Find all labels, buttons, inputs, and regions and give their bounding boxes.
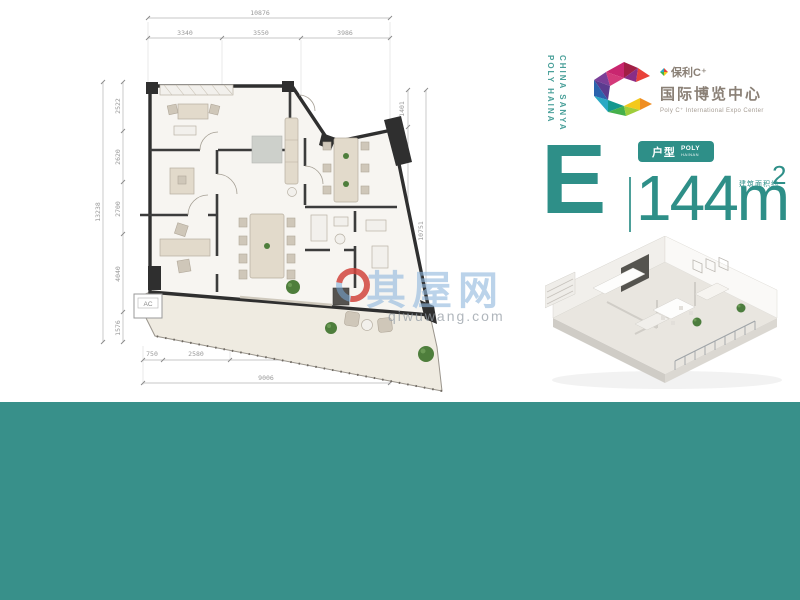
unit-type-badge: 户型 POLY HAINAN [638, 141, 714, 162]
unit-3d-render [545, 236, 795, 398]
bottom-section: 户 型 鉴 赏 UNIT APPRECIATION 板式结构 端头位置 南北通透… [0, 402, 800, 600]
brand-vertical-text-2: CHINA SANYA [558, 55, 567, 132]
dimensions-left: 13238 2522 2620 2700 4040 1576 [94, 80, 125, 344]
ac-label: AC [143, 301, 152, 308]
svg-text:3340: 3340 [177, 29, 193, 37]
brand-text-block: 保利C⁺ 国际博览中心 Poly C⁺ International Expo C… [660, 64, 764, 114]
unit-letter: E [541, 130, 606, 228]
svg-text:4040: 4040 [114, 266, 122, 282]
floorplan-drawing: 10876 3340 3550 3986 13238 2522 2620 270… [90, 6, 460, 398]
svg-text:2700: 2700 [114, 201, 122, 217]
svg-text:10876: 10876 [250, 9, 270, 17]
svg-text:1576: 1576 [114, 320, 122, 336]
brand-name-cn: 保利C⁺ [671, 64, 707, 80]
svg-text:1401: 1401 [398, 101, 406, 117]
brand-subname-cn: 国际博览中心 [660, 83, 764, 104]
svg-text:3550: 3550 [253, 29, 269, 37]
mini-logo-icon [660, 68, 668, 76]
svg-text:3986: 3986 [337, 29, 353, 37]
badge-label-en2: HAINAN [681, 153, 700, 157]
svg-text:13238: 13238 [94, 202, 102, 222]
polyc-logo-icon [586, 54, 662, 124]
unit-area-note: 建筑面积约 [739, 179, 779, 189]
ac-unit: AC [134, 294, 162, 318]
badge-label-cn: 户型 [652, 144, 676, 160]
svg-text:2580: 2580 [188, 350, 204, 358]
marketing-page: 10876 3340 3550 3986 13238 2522 2620 270… [0, 0, 800, 600]
top-section: 10876 3340 3550 3986 13238 2522 2620 270… [0, 0, 800, 402]
dimensions-top: 10876 3340 3550 3986 [146, 9, 392, 40]
unit-area-value: 144m [636, 166, 788, 230]
svg-text:750: 750 [146, 350, 158, 358]
svg-text:10751: 10751 [417, 221, 425, 241]
svg-text:2620: 2620 [114, 149, 122, 165]
brand-caption-en: Poly C⁺ International Expo Center [660, 107, 764, 114]
svg-text:2522: 2522 [114, 98, 122, 114]
svg-text:9006: 9006 [258, 374, 274, 382]
unit-divider [629, 177, 631, 232]
brand-vertical-text-1: POLY HAINA [546, 55, 555, 123]
